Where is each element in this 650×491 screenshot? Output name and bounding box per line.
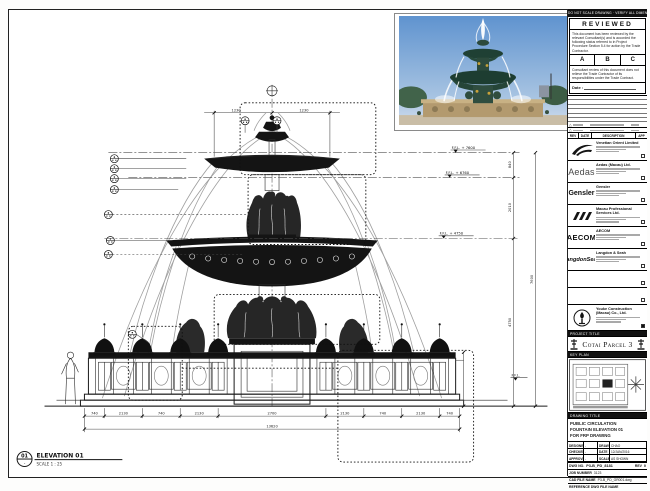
stamp-date-label: Date : xyxy=(572,85,583,90)
gensler-logo: Gensler xyxy=(568,183,595,204)
rev-value: 0 xyxy=(644,464,646,468)
drawing-title: PUBLIC CIRCULATION FOUNTAIN ELEVATION 01… xyxy=(568,419,647,442)
cad-label: CAD FILE NAME xyxy=(569,478,596,482)
consultant-name: AECOM xyxy=(596,229,646,233)
svg-text:2130: 2130 xyxy=(416,412,426,416)
blank-consultant-box xyxy=(568,288,647,305)
stamp-date-row: Date : xyxy=(570,82,645,93)
project-title-row: Cotai Parcel 3 xyxy=(568,337,647,352)
grade-c: C xyxy=(621,55,645,65)
reference-dwg-row: REFERENCE DWG FILE NAME xyxy=(568,484,647,491)
dwg-no-label: DWG NO. xyxy=(569,464,584,468)
langdon-seah-logo: LangdonSeah xyxy=(568,249,595,270)
fountain-photo-illustration xyxy=(399,16,567,125)
svg-text:7600: 7600 xyxy=(530,274,534,284)
svg-text:F.F.L. + 4750: F.F.L. + 4750 xyxy=(440,232,464,236)
stamp-body-2: Consultant review of this document does … xyxy=(570,66,645,82)
checkbox xyxy=(641,176,645,180)
stamp-body-1: This document has been reviewed by the r… xyxy=(570,30,645,54)
consultant-name: Venetian Orient Limited xyxy=(596,141,646,145)
app-col: APP xyxy=(636,133,647,138)
mps-logo xyxy=(568,205,595,226)
svg-text:740: 740 xyxy=(446,412,454,416)
stamp-title: REVIEWED xyxy=(570,19,645,30)
checkbox xyxy=(641,154,645,158)
rev-label: REV xyxy=(635,464,642,468)
contractor-row: Youke Construction (Macau) Co., Ltd. xyxy=(568,305,647,331)
svg-text:-: - xyxy=(24,461,26,466)
approved-label: APPROVED xyxy=(568,455,584,462)
checkbox xyxy=(641,198,645,202)
rev-col: REV xyxy=(568,133,579,138)
svg-text:2700: 2700 xyxy=(267,412,277,416)
cad-value: P3-B_PD_GR001.dwg xyxy=(598,478,632,482)
sign-off-table: DESIGNED - DRAWN CHAO CHECKED - DATE 12/… xyxy=(568,442,647,463)
svg-text:F.F.L.: F.F.L. xyxy=(512,374,521,378)
consultant-name: Gensler xyxy=(596,185,646,189)
job-value: 3123 xyxy=(594,471,602,475)
ref-label: REFERENCE DWG FILE NAME xyxy=(569,485,618,489)
aecom-logo: AECOM xyxy=(568,227,595,248)
svg-text:2010: 2010 xyxy=(508,202,512,212)
scale-note: SCALE 1 : 25 xyxy=(37,461,63,466)
stamp-grades: A B C xyxy=(570,54,645,66)
consultant-name: Langdon & Seah xyxy=(596,251,646,255)
consultant-row-aedas: Aedas Aedas (Macau) Ltd. xyxy=(568,161,647,183)
project-title: Cotai Parcel 3 xyxy=(582,340,632,349)
desc-col: DESCRIPTION xyxy=(592,133,636,138)
checkbox xyxy=(641,242,645,246)
checkbox xyxy=(641,220,645,224)
consultant-name: Aedas (Macau) Ltd. xyxy=(596,163,646,167)
scale-label: SCALE xyxy=(598,455,610,462)
dwg-no-value: P3-B_PD_8181 xyxy=(586,464,613,468)
svg-text:2130: 2130 xyxy=(340,412,350,416)
svg-text:740: 740 xyxy=(379,412,387,416)
top-note: DO NOT SCALE DRAWING · VERIFY ALL DIMENS… xyxy=(568,9,647,17)
svg-text:F.F.L. + 6760: F.F.L. + 6760 xyxy=(446,171,470,175)
aedas-logo: Aedas xyxy=(568,161,595,182)
consultant-name: Macau Professional Services Ltd. xyxy=(596,207,646,216)
key-plan xyxy=(568,358,647,413)
consultant-row-gensler: Gensler Gensler xyxy=(568,183,647,205)
reviewed-stamp: REVIEWED This document has been reviewed… xyxy=(569,18,646,94)
dwg-no-row: DWG NO. P3-B_PD_8181 REV 0 xyxy=(568,463,647,470)
drawing-title-line: FOR FRP DRAWING xyxy=(570,433,645,439)
elevation-label: ELEVATION 01 xyxy=(37,453,84,460)
svg-text:740: 740 xyxy=(91,412,99,416)
key-plan-map xyxy=(569,359,646,411)
scale-figure xyxy=(61,352,78,404)
job-number-row: JOB NUMBER 3123 xyxy=(568,470,647,477)
right-dimensions: 840 2010 4750 7600 xyxy=(456,151,537,408)
lower-statue-group xyxy=(227,296,317,338)
delta-icon: △ xyxy=(569,123,572,127)
stamp-date-line xyxy=(584,86,636,90)
scale-value: AS SHOWN xyxy=(610,455,647,462)
venetian-logo xyxy=(568,139,595,160)
consultant-row-mps: Macau Professional Services Ltd. xyxy=(568,205,647,227)
fountain-ornament-icon xyxy=(637,339,645,350)
svg-text:740: 740 xyxy=(158,412,166,416)
cad-file-row: CAD FILE NAME P3-B_PD_GR001.dwg xyxy=(568,477,647,484)
elevation-tag: 01 xyxy=(21,453,28,459)
reference-photo xyxy=(394,13,570,131)
svg-text:1230: 1230 xyxy=(299,108,309,112)
blank-consultant-box xyxy=(568,271,647,288)
title-block: DO NOT SCALE DRAWING · VERIFY ALL DIMENS… xyxy=(567,9,647,476)
svg-text:F.F.L. + 7600: F.F.L. + 7600 xyxy=(452,146,476,150)
consultant-row-langdon-seah: LangdonSeah Langdon & Seah xyxy=(568,249,647,271)
bottom-dimensions: 740 2130 740 2130 2700 2130 740 2130 740… xyxy=(83,408,461,432)
checkbox-filled xyxy=(641,324,645,328)
delta-icon: △ xyxy=(569,128,572,132)
grade-b: B xyxy=(595,55,620,65)
grade-a: A xyxy=(570,55,595,65)
checkbox xyxy=(641,264,645,268)
elevation-title: 01 - ELEVATION 01 SCALE 1 : 25 xyxy=(17,452,122,467)
revision-rows xyxy=(568,95,647,122)
consultant-row-venetian: Venetian Orient Limited xyxy=(568,139,647,161)
contractor-name: Youke Construction (Macau) Co., Ltd. xyxy=(596,307,646,316)
upper-statue-group xyxy=(246,192,301,241)
svg-text:2130: 2130 xyxy=(119,412,129,416)
consultant-row-aecom: AECOM AECOM xyxy=(568,227,647,249)
svg-text:4750: 4750 xyxy=(508,317,512,327)
date-col: DATE xyxy=(579,133,592,138)
youke-logo xyxy=(568,305,595,330)
fountain-ornament-icon xyxy=(570,339,578,350)
svg-text:13620: 13620 xyxy=(266,425,278,429)
svg-text:840: 840 xyxy=(508,161,512,169)
svg-text:2130: 2130 xyxy=(195,412,205,416)
approved-value: - xyxy=(584,455,598,462)
job-label: JOB NUMBER xyxy=(569,471,592,475)
